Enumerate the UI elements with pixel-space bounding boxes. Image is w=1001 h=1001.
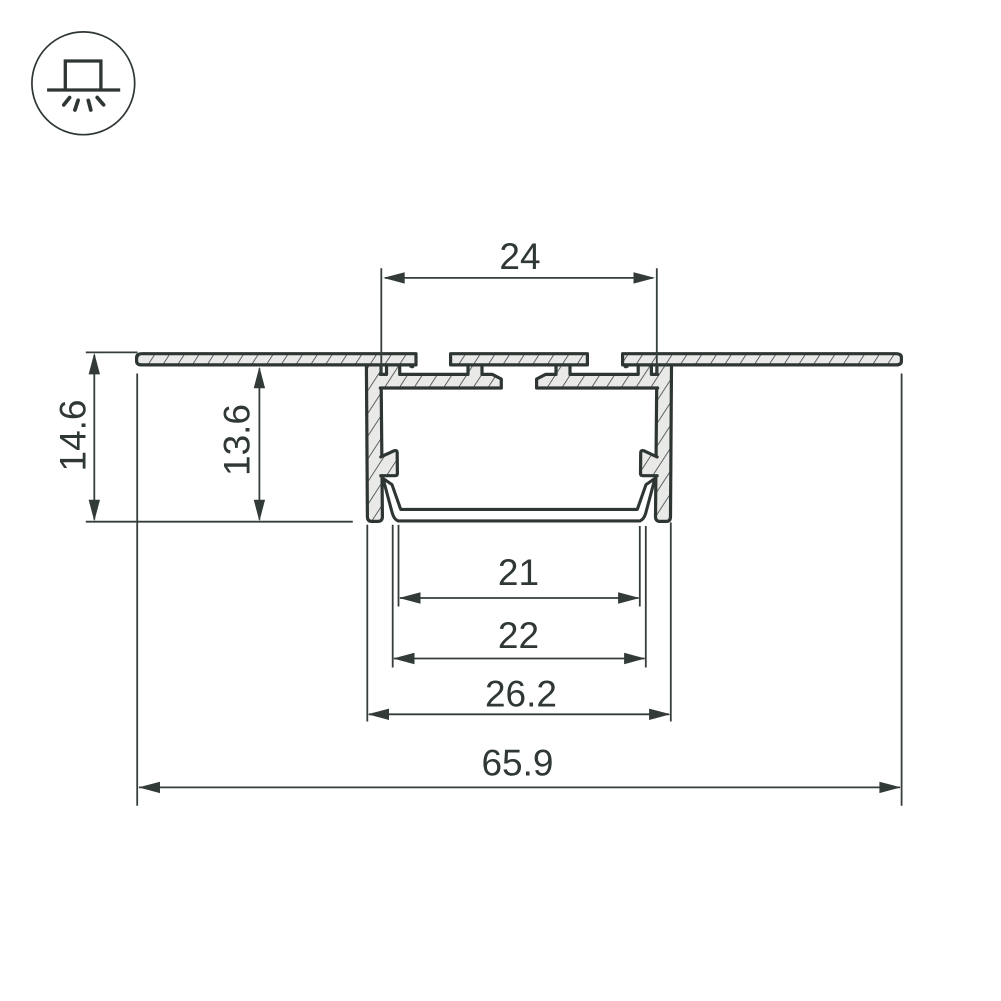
svg-text:13.6: 13.6 — [217, 404, 258, 476]
svg-text:24: 24 — [499, 236, 540, 277]
svg-text:65.9: 65.9 — [481, 742, 553, 783]
svg-text:22: 22 — [498, 615, 539, 656]
svg-text:26.2: 26.2 — [485, 674, 557, 715]
svg-text:21: 21 — [498, 552, 539, 593]
svg-text:14.6: 14.6 — [53, 399, 94, 471]
